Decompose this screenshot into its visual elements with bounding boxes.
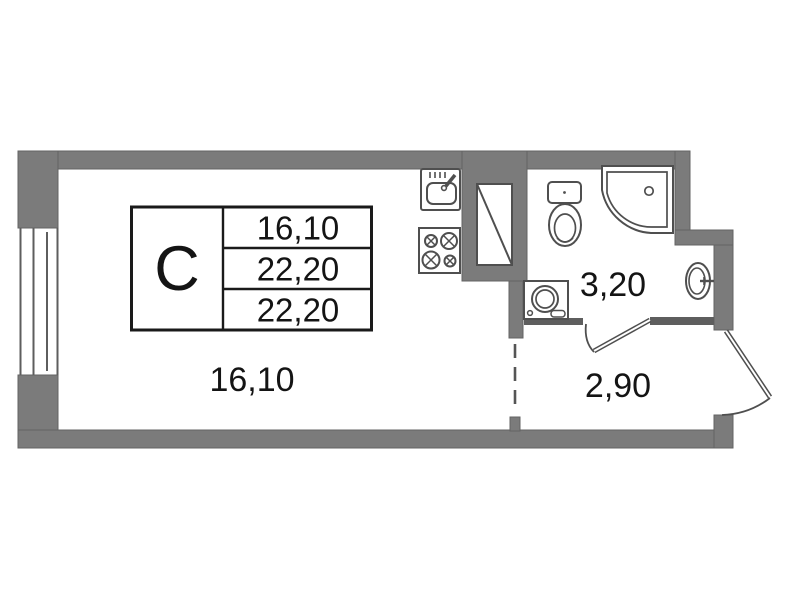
wall-top — [18, 151, 690, 169]
floor-plan: С 16,10 22,20 22,20 16,10 3,20 2,90 — [0, 0, 799, 600]
stove-icon — [419, 228, 460, 273]
hallway-area-label: 2,90 — [585, 367, 651, 405]
washing-machine-icon — [524, 281, 568, 319]
window-icon — [21, 228, 58, 375]
toilet-icon — [548, 182, 581, 246]
entry-door-icon — [722, 331, 770, 415]
living-room-area-label: 16,10 — [209, 361, 294, 399]
table-value-row1: 16,10 — [257, 210, 340, 247]
bathroom-area-label: 3,20 — [580, 266, 646, 304]
wall-partition-stub — [510, 417, 520, 431]
bathroom-door-icon — [586, 320, 650, 352]
wash-basin-icon — [686, 263, 714, 299]
wall-bottom-right-corner — [714, 415, 733, 448]
kitchen-sink-icon — [421, 169, 460, 210]
table-value-row3: 22,20 — [257, 292, 340, 329]
wall-right-middle — [714, 245, 733, 330]
unit-type-letter: С — [154, 234, 200, 304]
wall-step-band — [675, 230, 733, 245]
wall-partition-lower — [509, 281, 523, 338]
wall-left-upper — [18, 151, 58, 228]
unit-info-table: С 16,10 22,20 22,20 — [132, 207, 372, 330]
wall-bathroom-right-upper — [675, 151, 690, 230]
table-value-row2: 22,20 — [257, 251, 340, 288]
floor-plan-canvas: С 16,10 22,20 22,20 16,10 3,20 2,90 — [0, 0, 799, 600]
wall-bathroom-bottom-right — [650, 317, 714, 325]
corner-bath-icon — [602, 166, 673, 233]
wall-bottom — [18, 430, 733, 448]
ventilation-shaft-icon — [477, 184, 512, 265]
